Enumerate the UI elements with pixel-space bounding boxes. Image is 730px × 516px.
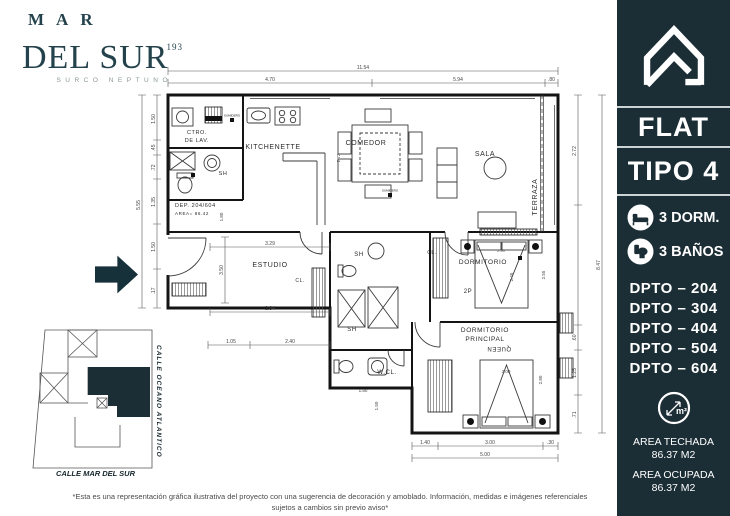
svg-text:.45: .45 bbox=[151, 144, 157, 151]
svg-text:3.29: 3.29 bbox=[265, 241, 275, 247]
svg-text:3.00: 3.00 bbox=[485, 440, 495, 446]
feature-banos: 3 BAÑOS bbox=[627, 238, 730, 265]
plan-windows bbox=[250, 95, 555, 232]
m2-icon: m² bbox=[617, 391, 730, 425]
tipo-title: TIPO 4 bbox=[617, 148, 730, 194]
street-label-bottom: CALLE MAR DEL SUR bbox=[38, 469, 153, 478]
brand-line1: MAR bbox=[28, 10, 172, 30]
svg-text:3.00: 3.00 bbox=[502, 369, 511, 374]
svg-text:2.40: 2.40 bbox=[285, 339, 295, 345]
svg-text:2.72: 2.72 bbox=[572, 146, 578, 156]
room-label-closet: CL. bbox=[427, 250, 437, 256]
room-label-queen: QUEEN bbox=[487, 345, 511, 351]
svg-text:2.72: 2.72 bbox=[336, 153, 341, 162]
svg-text:1.40: 1.40 bbox=[420, 440, 430, 446]
brand-number: 193 bbox=[166, 42, 183, 52]
plan-closets bbox=[172, 107, 573, 412]
minimap-unit-shape bbox=[88, 367, 150, 417]
svg-text:1.50: 1.50 bbox=[151, 242, 157, 252]
toilet-icon bbox=[627, 238, 654, 265]
svg-text:1.05: 1.05 bbox=[226, 339, 236, 345]
svg-text:5.94: 5.94 bbox=[453, 77, 463, 83]
street-label-right: CALLE OCEANO ATLANTICO bbox=[155, 345, 162, 460]
room-label-terraza: TERRAZA bbox=[532, 179, 539, 216]
room-label-sh: SH bbox=[219, 171, 228, 177]
svg-text:5.55: 5.55 bbox=[136, 200, 142, 210]
svg-text:.71: .71 bbox=[572, 411, 578, 418]
room-label-estudio: ESTUDIO bbox=[252, 262, 287, 269]
svg-text:2.55: 2.55 bbox=[541, 270, 546, 279]
svg-text:1.35: 1.35 bbox=[151, 197, 157, 207]
svg-text:.17: .17 bbox=[151, 287, 157, 294]
fixture-marker-label: SUMIDERO bbox=[382, 189, 399, 193]
svg-text:m²: m² bbox=[676, 406, 687, 416]
svg-text:11.54: 11.54 bbox=[357, 65, 369, 71]
disclaimer-text: *Esta es una representación gráfica ilus… bbox=[60, 491, 600, 514]
svg-text:1.50: 1.50 bbox=[374, 401, 379, 410]
room-label-lavanderia: CTRO. bbox=[187, 130, 207, 136]
room-label-lavanderia: DE LAV. bbox=[185, 138, 209, 144]
svg-text:1.50: 1.50 bbox=[151, 114, 157, 124]
room-label-closet: CL. bbox=[295, 278, 305, 284]
svg-text:.72: .72 bbox=[151, 164, 157, 171]
unit-list: DPTO – 204 DPTO – 304 DPTO – 404 DPTO – … bbox=[617, 279, 730, 379]
room-label-sh: SH bbox=[347, 327, 357, 333]
room-label-kitchenette: KITCHENETTE bbox=[245, 144, 300, 151]
entrance-arrow-icon bbox=[95, 252, 138, 297]
unit-note-line1: DEP. 204/604 bbox=[175, 203, 216, 209]
svg-text:.60: .60 bbox=[572, 334, 578, 341]
svg-text:3.50: 3.50 bbox=[219, 265, 225, 275]
unit-note-line2: AREA= 86.42 bbox=[175, 211, 209, 216]
room-label-comedor: COMEDOR bbox=[346, 140, 387, 147]
svg-text:2.84: 2.84 bbox=[265, 306, 275, 312]
svg-text:.80: .80 bbox=[548, 77, 555, 83]
area-techada-label: AREA TECHADA bbox=[617, 436, 730, 449]
unit-item: DPTO – 504 bbox=[617, 339, 730, 359]
plan-fixture-dots bbox=[191, 116, 546, 425]
svg-text:2.45: 2.45 bbox=[509, 272, 514, 281]
area-ocupada-value: 86.37 M2 bbox=[617, 482, 730, 495]
fixture-marker-label: SUMIDERO bbox=[224, 114, 241, 118]
area-ocupada-label: AREA OCUPADA bbox=[617, 469, 730, 482]
unit-item: DPTO – 604 bbox=[617, 359, 730, 379]
plan-dimension-labels: 11.54 4.70 5.94 .80 5.55 1.50 .45 .72 1.… bbox=[136, 65, 602, 458]
room-label-sh: SH bbox=[354, 252, 364, 258]
svg-text:8.47: 8.47 bbox=[596, 260, 602, 270]
site-minimap bbox=[20, 322, 170, 482]
room-label-dormitorio: DORMITORIO bbox=[459, 259, 507, 266]
flat-title: FLAT bbox=[617, 108, 730, 146]
unit-item: DPTO – 404 bbox=[617, 319, 730, 339]
room-label-principal: PRINCIPAL bbox=[465, 336, 504, 343]
feature-list: 3 DORM. 3 BAÑOS bbox=[617, 196, 730, 265]
svg-text:2.90: 2.90 bbox=[497, 248, 506, 253]
building-logo-icon bbox=[617, 0, 730, 106]
flyer-page: MAR DEL SUR193 SURCO NEPTUNO bbox=[0, 0, 730, 516]
area-techada-value: 86.37 M2 bbox=[617, 449, 730, 462]
feature-dorms-label: 3 DORM. bbox=[659, 210, 719, 226]
svg-text:2.80: 2.80 bbox=[538, 375, 543, 384]
unit-item: DPTO – 204 bbox=[617, 279, 730, 299]
svg-text:1.80: 1.80 bbox=[219, 212, 224, 221]
svg-text:4.70: 4.70 bbox=[265, 77, 275, 83]
svg-text:1.25: 1.25 bbox=[572, 368, 578, 378]
bed-icon bbox=[627, 204, 654, 231]
sidebar: FLAT TIPO 4 3 DORM. bbox=[617, 0, 730, 516]
room-label-principal: DORMITORIO bbox=[461, 327, 509, 334]
room-label-dormitorio-2p: 2P bbox=[464, 289, 473, 295]
svg-text:.30: .30 bbox=[547, 440, 554, 446]
area-info: AREA TECHADA 86.37 M2 AREA OCUPADA 86.37… bbox=[617, 436, 730, 502]
room-label-sala: SALA bbox=[475, 151, 495, 158]
room-label-walkin: W.CL. bbox=[377, 370, 396, 376]
feature-banos-label: 3 BAÑOS bbox=[659, 244, 723, 260]
feature-dorms: 3 DORM. bbox=[627, 204, 730, 231]
unit-item: DPTO – 304 bbox=[617, 299, 730, 319]
svg-text:5.00: 5.00 bbox=[480, 452, 490, 458]
svg-text:1.80: 1.80 bbox=[359, 388, 368, 393]
floor-plan: SUMIDERO SUMIDERO 11.54 4.70 5.94 .80 5.… bbox=[135, 55, 615, 495]
plan-dimension-lines bbox=[138, 67, 606, 462]
